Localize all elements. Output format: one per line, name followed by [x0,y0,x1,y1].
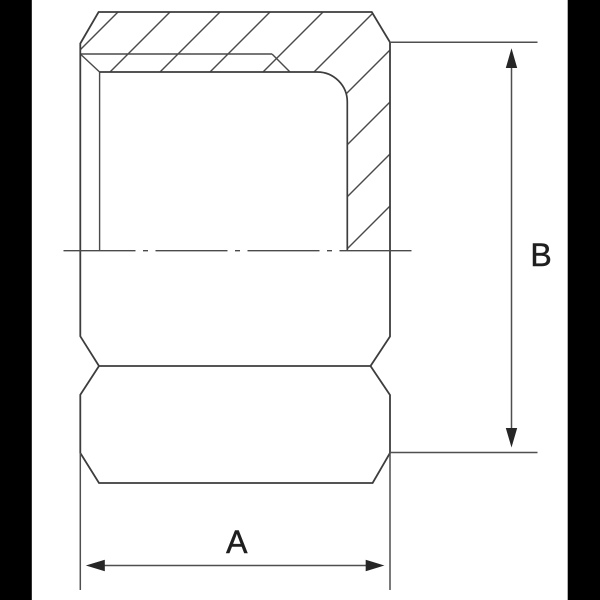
svg-text:A: A [226,524,248,560]
svg-text:B: B [530,237,551,273]
